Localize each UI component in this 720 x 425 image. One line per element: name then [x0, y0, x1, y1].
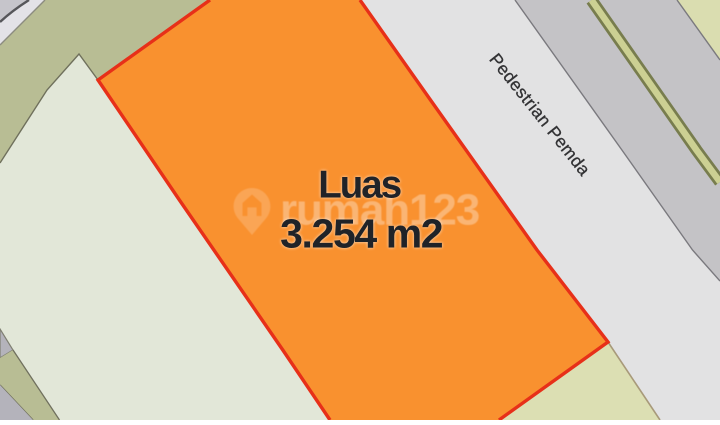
- svg-text:3.254 m2: 3.254 m2: [280, 211, 443, 257]
- svg-text:Luas: Luas: [318, 164, 400, 207]
